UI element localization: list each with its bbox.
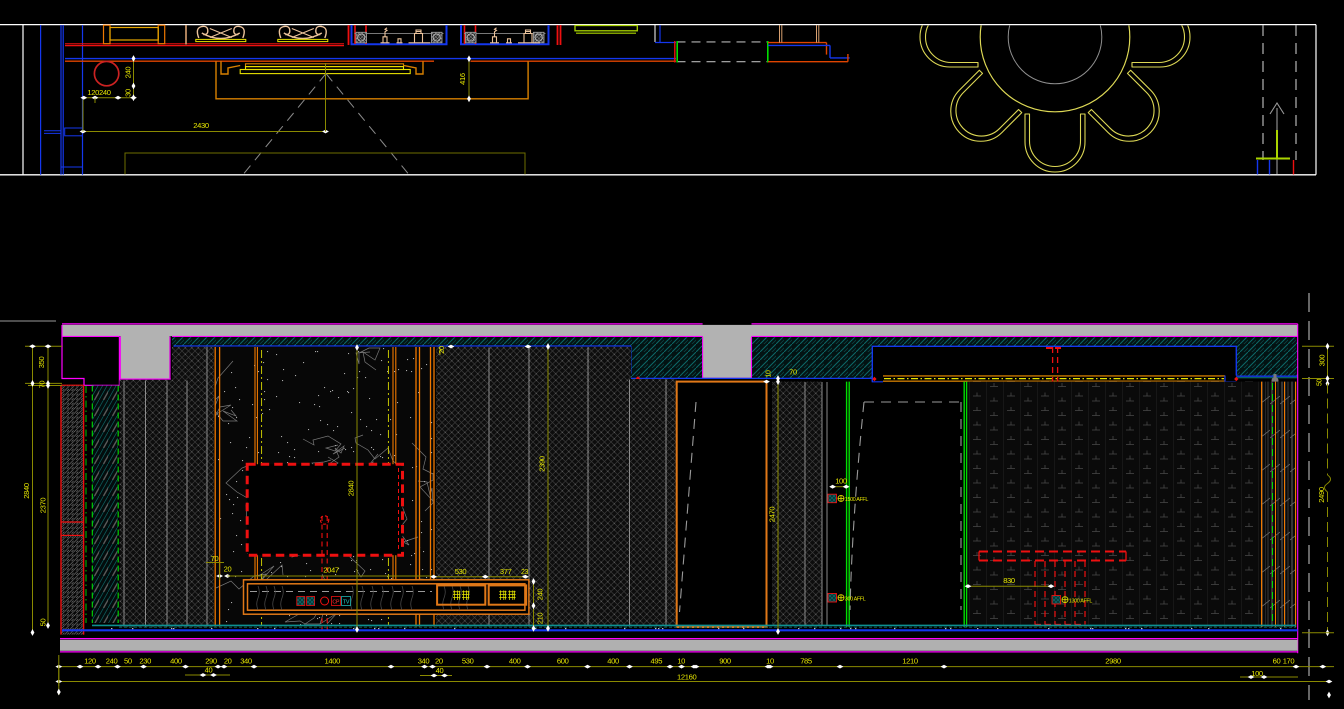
svg-text:400: 400 — [509, 657, 521, 666]
svg-text:12160: 12160 — [677, 673, 696, 682]
svg-text:400: 400 — [170, 657, 182, 666]
svg-text:300: 300 — [1318, 355, 1327, 367]
svg-text:23: 23 — [521, 569, 529, 576]
svg-text:830: 830 — [1003, 576, 1015, 585]
svg-text:210: 210 — [536, 613, 545, 625]
svg-text:300 AFFL: 300 AFFL — [845, 596, 866, 602]
svg-text:377: 377 — [500, 567, 512, 576]
svg-text:1210: 1210 — [902, 657, 918, 666]
svg-text:2430: 2430 — [193, 121, 209, 130]
svg-text:2047: 2047 — [323, 566, 339, 575]
svg-text:50: 50 — [124, 657, 132, 666]
svg-text:CP: CP — [332, 600, 340, 606]
svg-text:40: 40 — [436, 666, 444, 675]
svg-text:495: 495 — [650, 657, 662, 666]
svg-text:20: 20 — [437, 346, 446, 354]
svg-text:120: 120 — [84, 657, 96, 666]
svg-text:240: 240 — [124, 67, 133, 79]
svg-text:1300 AFFL: 1300 AFFL — [1069, 598, 1093, 604]
svg-text:2840: 2840 — [22, 483, 31, 499]
svg-text:120240: 120240 — [87, 88, 110, 97]
svg-text:100: 100 — [835, 476, 847, 485]
svg-text:1400: 1400 — [325, 657, 341, 666]
svg-text:785: 785 — [800, 657, 812, 666]
svg-text:2980: 2980 — [1105, 657, 1121, 666]
svg-text:350: 350 — [37, 356, 46, 368]
svg-text:230: 230 — [139, 657, 151, 666]
svg-text:60: 60 — [1273, 657, 1281, 666]
svg-text:TV: TV — [343, 600, 350, 606]
svg-text:100: 100 — [1251, 669, 1263, 678]
svg-text:340: 340 — [418, 657, 430, 666]
svg-text:530: 530 — [462, 657, 474, 666]
svg-text:900: 900 — [719, 657, 731, 666]
svg-text:70: 70 — [789, 368, 797, 377]
svg-text:2390: 2390 — [538, 456, 547, 472]
svg-text:2370: 2370 — [39, 498, 48, 514]
svg-text:10: 10 — [677, 657, 685, 666]
svg-text:30: 30 — [124, 89, 133, 97]
svg-text:10: 10 — [766, 370, 773, 378]
svg-text:70: 70 — [38, 381, 47, 389]
svg-text:2490: 2490 — [1317, 487, 1326, 503]
svg-text:20: 20 — [435, 657, 443, 666]
svg-text:400: 400 — [607, 657, 619, 666]
svg-text:20: 20 — [224, 565, 232, 574]
svg-text:2470: 2470 — [768, 507, 777, 523]
svg-text:240: 240 — [106, 657, 118, 666]
svg-text:2840: 2840 — [347, 481, 356, 497]
svg-text:1500 AFFL: 1500 AFFL — [845, 497, 869, 503]
svg-text:50: 50 — [39, 619, 48, 627]
svg-text:340: 340 — [240, 657, 252, 666]
svg-text:40: 40 — [205, 666, 213, 675]
svg-text:20: 20 — [224, 657, 232, 666]
svg-text:240: 240 — [536, 589, 545, 601]
svg-text:10: 10 — [766, 657, 774, 666]
svg-text:600: 600 — [557, 657, 569, 666]
svg-text:170: 170 — [1283, 657, 1295, 666]
svg-text:290: 290 — [205, 657, 217, 666]
svg-text:70: 70 — [211, 554, 219, 563]
svg-text:50: 50 — [1317, 379, 1324, 387]
svg-text:530: 530 — [455, 567, 467, 576]
svg-text:416: 416 — [458, 73, 467, 85]
